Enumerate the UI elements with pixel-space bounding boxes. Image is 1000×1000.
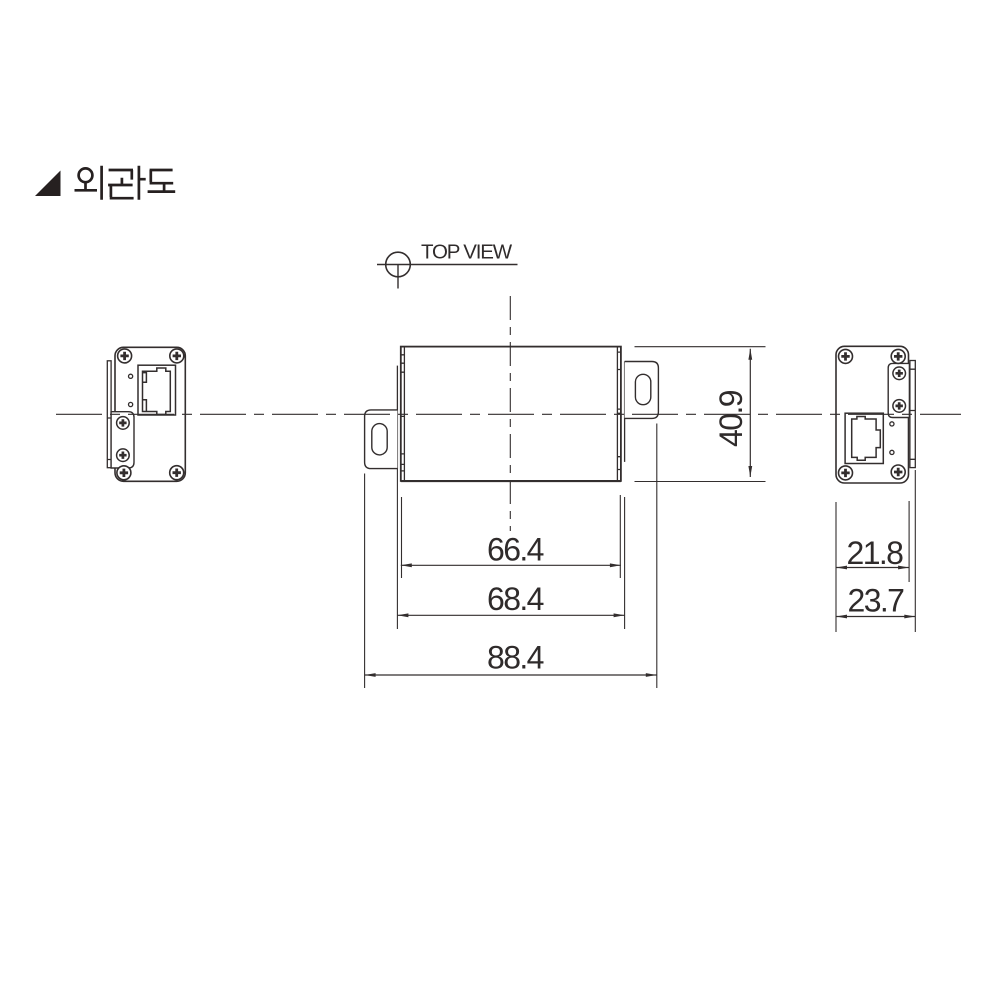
svg-text:21.8: 21.8 bbox=[847, 535, 904, 571]
svg-text:68.4: 68.4 bbox=[487, 581, 544, 617]
svg-text:40.9: 40.9 bbox=[713, 390, 749, 447]
svg-text:88.4: 88.4 bbox=[487, 640, 544, 676]
svg-text:TOP VIEW: TOP VIEW bbox=[421, 241, 513, 264]
svg-text:66.4: 66.4 bbox=[487, 532, 544, 568]
svg-text:23.7: 23.7 bbox=[848, 583, 905, 619]
